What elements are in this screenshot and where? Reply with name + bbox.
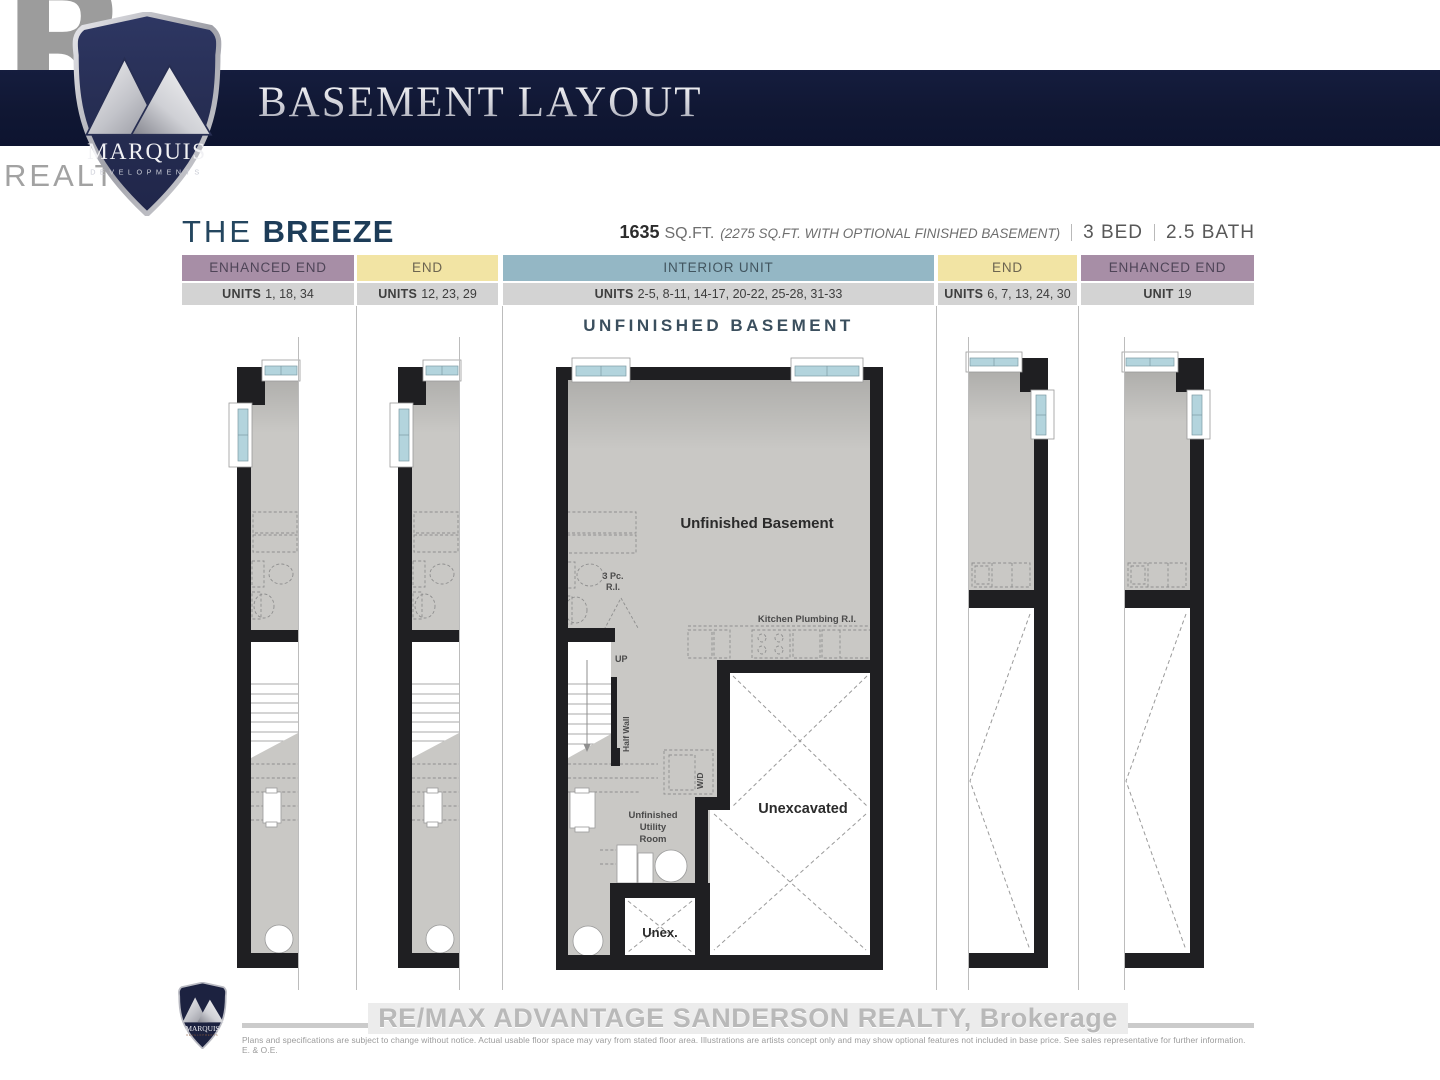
floorplan-enhanced-end-left bbox=[229, 337, 300, 990]
logo-name: MARQUIS bbox=[185, 1024, 219, 1033]
bath-roughin-label: R.I. bbox=[606, 582, 620, 592]
floorplan-end-left bbox=[390, 337, 461, 990]
logo-name: MARQUIS bbox=[87, 139, 207, 165]
room-label-unfinished-basement: Unfinished Basement bbox=[680, 515, 833, 532]
kitchen-roughin-label: Kitchen Plumbing R.I. bbox=[758, 614, 856, 625]
page-title: BASEMENT LAYOUT bbox=[258, 78, 703, 127]
brokerage-line: RE/MAX ADVANTAGE SANDERSON REALTY, Broke… bbox=[242, 1003, 1254, 1034]
unexcavated-label: Unexcavated bbox=[758, 801, 847, 817]
disclaimer-text: Plans and specifications are subject to … bbox=[242, 1035, 1256, 1055]
stairs-up-label: UP bbox=[615, 654, 628, 664]
brokerage-name: RE/MAX ADVANTAGE SANDERSON REALTY, Broke… bbox=[368, 1003, 1128, 1034]
bath-roughin-label: 3 Pc. bbox=[602, 571, 623, 581]
washer-dryer-label: W/D bbox=[695, 772, 705, 789]
logo-subtitle: DEVELOPMENTS bbox=[186, 1035, 218, 1037]
unexcavated-small-label: Unex. bbox=[642, 925, 677, 940]
utility-room-label: Room bbox=[640, 834, 667, 845]
utility-room-label: Utility bbox=[640, 822, 667, 833]
logo-subtitle: DEVELOPMENTS bbox=[90, 168, 204, 177]
page: R REALTOR® BASEMENT LAYOUT MARQUIS DEVEL… bbox=[0, 0, 1440, 1080]
marquis-shield-logo-small: MARQUIS DEVELOPMENTS bbox=[174, 982, 231, 1049]
half-wall-label: Half Wall bbox=[621, 716, 631, 752]
floorplan-end-right bbox=[966, 337, 1054, 990]
utility-room-label: Unfinished bbox=[628, 810, 677, 821]
floorplan-interior-unit: Unfinished Basement 3 Pc. R.I. Kitchen P… bbox=[556, 358, 883, 970]
marquis-shield-logo: MARQUIS DEVELOPMENTS bbox=[60, 12, 234, 216]
floorplan-enhanced-end-right bbox=[1122, 337, 1210, 990]
